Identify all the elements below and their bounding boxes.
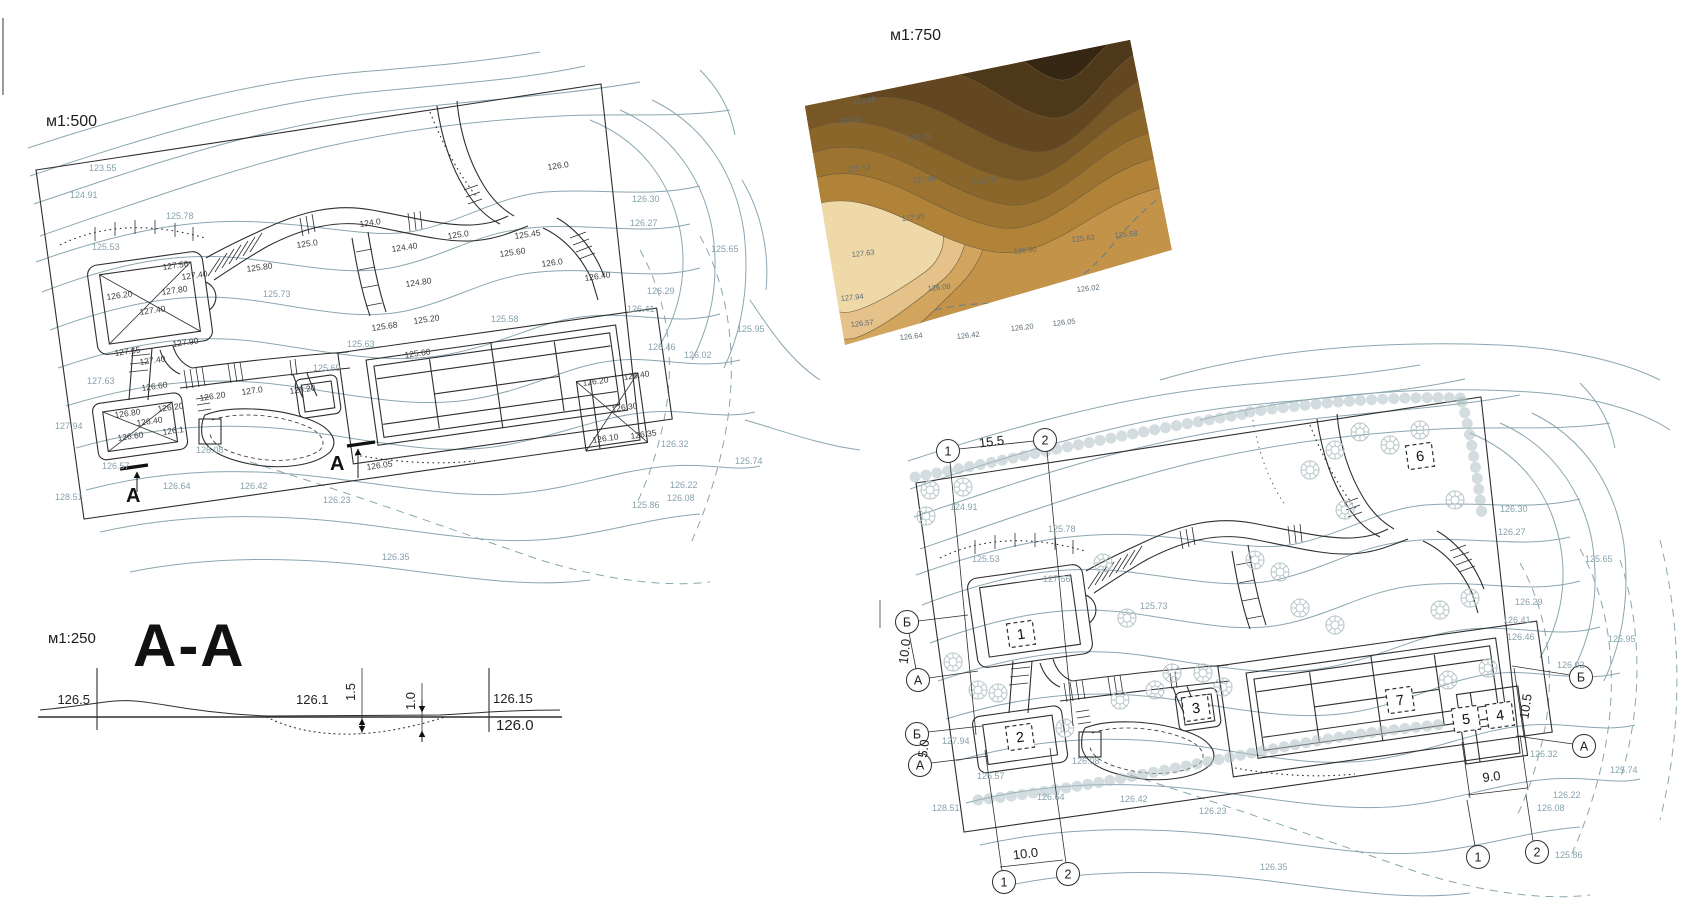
plan-working-contour-labels: 124.91125.78125.53127.56125.73127.94126.… — [932, 502, 1638, 872]
spot-elevation-label: 127.90 — [172, 335, 199, 349]
spot-elevation-label: 126.1 — [162, 424, 185, 437]
contour-elevation-label: 126.08 — [1072, 756, 1100, 766]
contour-elevation-label: 125.69 — [313, 363, 341, 373]
contour-elevation-label: 126.30 — [1500, 504, 1528, 514]
dimension-label: 10.5 — [1516, 693, 1534, 720]
contour-elevation-label: 126.64 — [1037, 792, 1065, 802]
dimension-label: 9.0 — [1482, 768, 1502, 785]
spot-elevation-label: 125.60 — [499, 245, 526, 259]
spot-elevation-label: 126.10 — [592, 431, 619, 445]
spot-elevation-label: 126.20 — [289, 382, 316, 396]
spot-elevation-label: 125.68 — [371, 319, 398, 333]
plan-500-spot-labels: 127.56127.40126.20127.80127.40127.65127.… — [106, 159, 657, 472]
spot-elevation-label: 125.20 — [413, 312, 440, 326]
spot-elevation-label: 127.0 — [241, 384, 264, 397]
contour-elevation-label: 126.41 — [627, 304, 655, 314]
contour-elevation-label: 126.22 — [1553, 790, 1581, 800]
contour-elevation-label: 125.86 — [632, 500, 660, 510]
spot-elevation-label: 125.60 — [404, 346, 431, 360]
grid-axes — [909, 441, 1573, 871]
spot-elevation-label: 126.20 — [199, 389, 226, 403]
dimension-label: 10.0 — [1012, 845, 1039, 863]
spot-elevation-label: 125.80 — [246, 260, 273, 274]
spot-elevation-label: 124.40 — [391, 240, 418, 254]
axis-bubble-label: Б — [903, 616, 911, 630]
contour-elevation-label: 126.57 — [977, 771, 1005, 781]
dimension-label: 10.0 — [896, 638, 914, 665]
contour-elevation-label: 126.35 — [382, 552, 410, 562]
section-elev-mid: 126.1 — [296, 692, 329, 707]
item-number-boxes: 1234567 — [1005, 442, 1514, 750]
contour-elevation-label: 126.08 — [667, 493, 695, 503]
contour-elevation-label: 127.56 — [1043, 574, 1071, 584]
contour-elevation-label: 128.51 — [932, 803, 960, 813]
contour-elevation-label: 126.57 — [102, 461, 130, 471]
section-title: A-A — [133, 612, 246, 679]
spot-elevation-label: 125.0 — [447, 228, 470, 241]
contour-elevation-label: 124.91 — [950, 502, 978, 512]
spot-elevation-label: 126.60 — [141, 379, 168, 393]
spot-elevation-label: 127.40 — [139, 303, 166, 317]
contour-elevation-label: 126.42 — [240, 481, 268, 491]
contour-elevation-label: 126.35 — [1260, 862, 1288, 872]
contour-elevation-label: 126.46 — [648, 342, 676, 352]
contour-elevation-label: 126.08 — [196, 445, 224, 455]
dim-shallow-label: 1.0 — [403, 692, 418, 710]
axis-bubble-label: 1 — [945, 445, 952, 459]
map-elevation-label: 126.02 — [1076, 283, 1100, 294]
dim-deep-label: 1.5 — [343, 683, 358, 701]
plan-500: м1:500 AA 123.55124.91125.78125.53125.73… — [3, 18, 765, 584]
spot-elevation-label: 127.40 — [181, 268, 208, 282]
map-750-scale: м1:750 — [890, 27, 941, 44]
contour-elevation-label: 126.32 — [1530, 749, 1558, 759]
contour-elevation-label: 126.22 — [670, 480, 698, 490]
contour-elevation-label: 124.91 — [70, 190, 98, 200]
contour-elevation-label: 125.74 — [1610, 765, 1638, 775]
tree-rows — [915, 398, 1482, 800]
contour-elevation-label: 126.23 — [1199, 806, 1227, 816]
spot-elevation-label: 126.05 — [366, 458, 393, 472]
contour-elevation-label: 128.51 — [55, 492, 83, 502]
contour-elevation-label: 125.65 — [1585, 554, 1613, 564]
contour-elevation-label: 125.53 — [972, 554, 1000, 564]
contour-elevation-label: 125.95 — [737, 324, 765, 334]
contour-elevation-label: 126.08 — [1537, 803, 1565, 813]
contour-elevation-label: 123.55 — [89, 163, 117, 173]
contour-elevation-label: 127.94 — [942, 736, 970, 746]
axis-bubbles: 12БАБА12БА12 — [896, 429, 1596, 894]
contour-elevation-label: 126.27 — [630, 218, 658, 228]
section-letters: AA — [126, 453, 344, 507]
axis-bubble-label: Б — [1577, 671, 1585, 685]
spot-elevation-label: 125.0 — [296, 237, 319, 250]
section-letter: A — [126, 485, 140, 507]
axis-bubble-label: А — [1580, 740, 1589, 754]
contour-elevation-label: 126.29 — [647, 286, 675, 296]
axis-bubble-label: 1 — [1475, 851, 1482, 865]
contour-elevation-label: 125.65 — [711, 244, 739, 254]
contour-elevation-label: 126.32 — [661, 439, 689, 449]
dimension-label: 5.0 — [915, 739, 932, 759]
spot-elevation-label: 127.65 — [114, 344, 141, 358]
map-elevation-label: 126.64 — [899, 331, 923, 342]
spot-elevation-label: 126.0 — [547, 159, 570, 172]
map-elevation-label: 126.05 — [1052, 317, 1076, 328]
contour-elevation-label: 126.23 — [323, 495, 351, 505]
dimension-label: 15.5 — [978, 433, 1005, 451]
section-elev-right-top: 126.15 — [493, 691, 533, 706]
contour-elevation-label: 125.58 — [491, 314, 519, 324]
spot-elevation-label: 126.30 — [611, 400, 638, 414]
spot-elevation-label: 124.80 — [405, 275, 432, 289]
axis-bubble-label: 2 — [1065, 868, 1072, 882]
dim-1-0: 1.0 — [403, 683, 422, 742]
spot-elevation-label: 127.56 — [162, 258, 189, 272]
section-letter: A — [330, 453, 344, 475]
map-elevation-label: 126.20 — [1010, 322, 1034, 333]
contour-elevation-label: 126.64 — [163, 481, 191, 491]
spot-elevation-label: 126.20 — [106, 288, 133, 302]
contour-elevation-label: 125.74 — [735, 456, 763, 466]
dim-1-5: 1.5 — [343, 668, 362, 734]
contour-elevation-label: 126.29 — [1515, 597, 1543, 607]
section-scale: м1:250 — [48, 630, 96, 647]
drawing-canvas: м1:500 AA 123.55124.91125.78125.53125.73… — [0, 0, 1695, 910]
spot-elevation-label: 126.35 — [630, 427, 657, 441]
contour-elevation-label: 126.42 — [1120, 794, 1148, 804]
spot-elevation-label: 126.60 — [117, 429, 144, 443]
contour-elevation-label: 126.02 — [1557, 660, 1585, 670]
contour-elevation-label: 126.46 — [1507, 632, 1535, 642]
contour-elevation-label: 125.86 — [1555, 850, 1583, 860]
contour-elevation-label: 126.27 — [1498, 527, 1526, 537]
contour-elevation-label: 125.53 — [92, 242, 120, 252]
contour-elevation-label: 125.73 — [263, 289, 291, 299]
axis-bubble-label: 2 — [1042, 434, 1049, 448]
contour-elevation-label: 125.95 — [1608, 634, 1636, 644]
contour-elevation-label: 126.02 — [684, 350, 712, 360]
contour-elevation-label: 125.73 — [1140, 601, 1168, 611]
spot-elevation-label: 127.40 — [139, 353, 166, 367]
contour-elevation-label: 127.63 — [87, 376, 115, 386]
contour-elevation-label: 127.94 — [55, 421, 83, 431]
map-elevation-label: 126.42 — [956, 330, 980, 341]
map-750: м1:750 123.55124.91125.78125.53127.56125… — [780, 0, 1200, 363]
contour-elevation-label: 126.41 — [1503, 615, 1531, 625]
plan-500-scale: м1:500 — [46, 113, 97, 130]
spot-elevation-label: 127.80 — [161, 283, 188, 297]
axis-bubble-label: А — [916, 759, 925, 773]
contour-elevation-label: 126.30 — [632, 194, 660, 204]
axis-bubble-label: 1 — [1001, 876, 1008, 890]
spot-elevation-label: 126.20 — [582, 374, 609, 388]
section-elev-right-bottom: 126.0 — [496, 717, 534, 734]
spot-elevation-label: 126.0 — [541, 256, 564, 269]
spot-elevation-label: 126.40 — [623, 368, 650, 382]
axis-bubble-label: 2 — [1534, 846, 1541, 860]
drawing-sheet: м1:500 AA 123.55124.91125.78125.53125.73… — [0, 0, 1695, 910]
contour-elevation-label: 125.63 — [347, 339, 375, 349]
section-elev-left: 126.5 — [57, 692, 90, 707]
contour-elevation-label: 125.78 — [166, 211, 194, 221]
contour-elevation-label: 125.78 — [1048, 524, 1076, 534]
axis-bubble-label: А — [914, 674, 923, 688]
section-aa: м1:250 A-A 1.5 1.0 126.5 126.1 126.15 12… — [38, 612, 562, 742]
spot-elevation-label: 126.20 — [157, 400, 184, 414]
